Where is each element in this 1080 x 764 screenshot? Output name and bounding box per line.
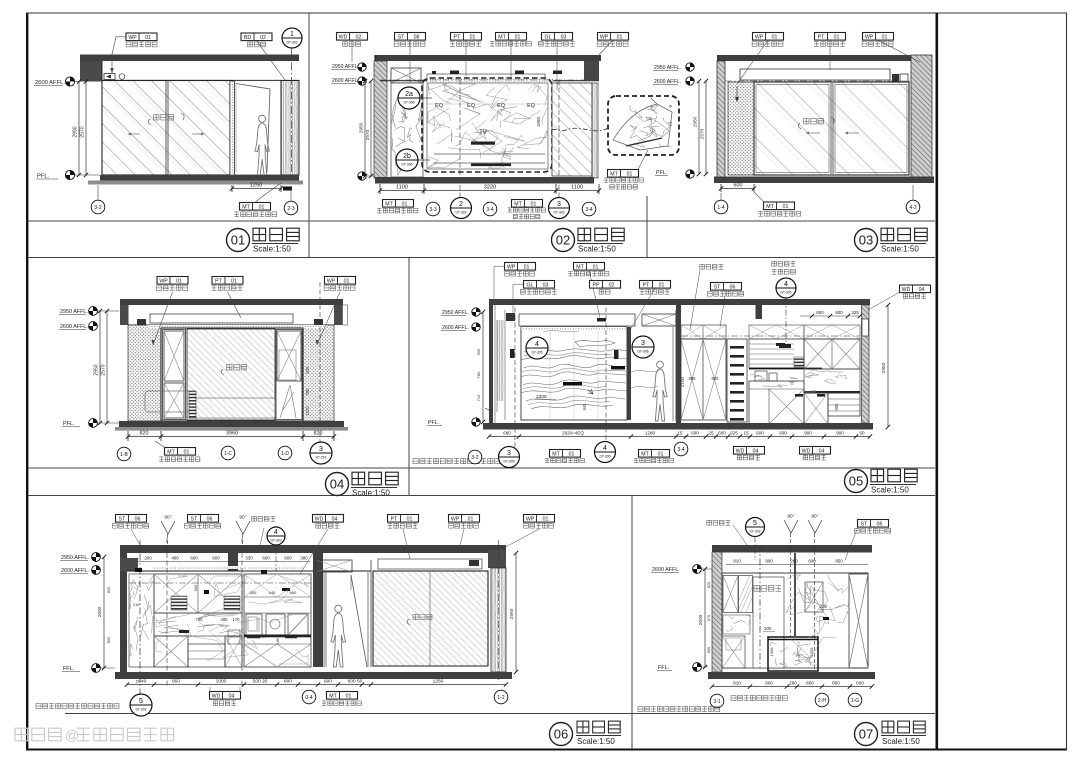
svg-text:WP: WP [600,34,609,40]
svg-text:01: 01 [531,201,537,207]
svg-text:2920=4EQ: 2920=4EQ [562,431,584,436]
svg-text:FFL.: FFL. [63,666,74,672]
svg-text:600: 600 [190,556,198,561]
svg-text:GL: GL [545,34,552,40]
svg-text:3220: 3220 [484,185,496,191]
svg-text:600: 600 [689,376,697,381]
svg-text:02: 02 [356,34,362,40]
svg-text:1100: 1100 [571,185,583,191]
svg-text:4: 4 [603,445,607,452]
svg-text:WD: WD [902,287,911,293]
svg-text:1280: 1280 [645,431,656,436]
svg-text:820: 820 [140,431,149,437]
svg-text:WP: WP [526,516,535,522]
svg-text:1-4: 1-4 [717,205,724,211]
svg-text:780: 780 [476,371,481,378]
svg-text:WP: WP [865,34,874,40]
svg-text:WP: WP [128,35,137,41]
svg-text:Scale:1:50: Scale:1:50 [352,489,390,498]
svg-text:1-2: 1-2 [497,695,504,701]
svg-text:01: 01 [259,204,265,210]
svg-text:WP: WP [755,34,764,40]
svg-text:600: 600 [734,183,743,189]
svg-text:2600 AFFL.: 2600 AFFL. [60,324,88,330]
svg-text:01: 01 [658,451,664,457]
svg-text:01: 01 [176,278,182,284]
svg-text:900: 900 [804,431,812,436]
svg-text:950: 950 [172,679,180,685]
svg-text:01: 01 [882,34,888,40]
svg-text:600: 600 [756,431,764,436]
svg-text:WP: WP [507,264,516,270]
svg-text:PT: PT [818,34,825,40]
svg-text:04: 04 [753,448,759,454]
svg-text:04: 04 [919,287,925,293]
svg-text:800: 800 [107,637,111,643]
svg-text:600: 600 [284,556,292,561]
svg-text:1980: 1980 [536,116,541,127]
svg-text:PFL.: PFL. [63,421,74,427]
svg-text:160: 160 [276,638,280,644]
svg-text:ST: ST [861,521,868,527]
svg-text:2600: 2600 [698,614,704,625]
svg-text:01: 01 [407,516,413,522]
svg-text:640: 640 [269,590,276,595]
svg-text:WP: WP [451,516,460,522]
svg-text:2570: 2570 [80,126,86,137]
svg-text:1: 1 [290,31,294,38]
svg-text:ST: ST [714,284,721,290]
svg-text:PP: PP [593,282,600,288]
svg-text:01: 01 [402,201,408,207]
svg-text:04: 04 [332,516,338,522]
svg-text:2950 AFFL.: 2950 AFFL. [60,309,88,315]
svg-text:960: 960 [834,403,839,411]
svg-text:713: 713 [476,394,481,401]
svg-text:06: 06 [730,284,736,290]
svg-text:Scale:1:50: Scale:1:50 [253,245,291,254]
svg-text:3: 3 [641,340,645,347]
svg-text:ST-302: ST-302 [750,530,761,534]
svg-text:4: 4 [274,529,278,536]
svg-text:3: 3 [507,450,511,457]
svg-text:01: 01 [659,282,665,288]
svg-text:Scale:1:50: Scale:1:50 [577,737,615,746]
svg-text:820: 820 [314,431,323,437]
svg-text:02: 02 [556,233,570,248]
svg-text:DT-305: DT-305 [503,460,514,464]
svg-text:670: 670 [707,615,711,621]
svg-text:ST-302: ST-302 [136,708,147,712]
svg-text:Scale:1:50: Scale:1:50 [882,737,920,746]
svg-text:2300: 2300 [536,394,547,400]
svg-text:01: 01 [468,516,474,522]
svg-text:ST-301: ST-301 [316,456,327,460]
svg-text:210: 210 [133,603,139,607]
svg-text:760: 760 [196,617,204,622]
svg-text:2600 AFFL.: 2600 AFFL. [35,80,65,86]
svg-text:2570: 2570 [101,364,107,375]
svg-text:3-4: 3-4 [486,207,493,213]
svg-text:01: 01 [344,278,350,284]
svg-text:5: 5 [753,520,757,527]
svg-text:Scale:1:50: Scale:1:50 [578,245,616,254]
svg-text:2950: 2950 [881,362,887,373]
svg-text:01: 01 [515,34,521,40]
svg-text:2600 AFFL.: 2600 AFFL. [442,325,469,331]
svg-text:06: 06 [135,516,141,522]
svg-text:600: 600 [691,431,699,436]
svg-text:01: 01 [184,449,190,455]
svg-text:MT: MT [641,451,649,457]
svg-text:600: 600 [712,376,720,381]
svg-text:325: 325 [851,310,859,315]
svg-text:400: 400 [221,617,229,622]
svg-text:90°: 90° [787,514,794,520]
svg-text:2-H: 2-H [818,698,826,704]
svg-text:DT-306: DT-306 [637,350,648,354]
svg-text:01: 01 [145,35,151,41]
svg-text:DT-302: DT-302 [553,211,564,215]
svg-text:03: 03 [859,233,873,248]
svg-text:PFL.: PFL. [428,420,439,426]
svg-text:820: 820 [707,582,711,588]
svg-text:3: 3 [557,201,561,208]
svg-text:780: 780 [305,388,310,396]
svg-text:WP: WP [159,278,168,284]
svg-text:50: 50 [859,431,865,436]
svg-text:600: 600 [262,556,270,561]
svg-text:4: 4 [535,341,539,348]
svg-text:BD: BD [244,35,251,41]
svg-text:25: 25 [708,431,714,436]
svg-text:600: 600 [779,431,787,436]
svg-text:01: 01 [543,516,549,522]
svg-text:600: 600 [718,431,726,436]
svg-text:2600 AFFL.: 2600 AFFL. [332,78,359,84]
svg-text:3960: 3960 [226,431,238,437]
svg-text:680: 680 [503,431,511,436]
svg-text:WD: WD [339,34,348,40]
svg-text:330: 330 [245,556,253,561]
svg-text:600 50: 600 50 [348,679,363,685]
svg-text:MT: MT [385,201,393,207]
svg-text:MT: MT [766,204,774,210]
svg-text:05: 05 [849,474,863,489]
svg-text:PFL.: PFL. [656,170,667,176]
svg-text:PT: PT [643,282,650,288]
svg-text:1000: 1000 [216,679,227,685]
svg-text:900: 900 [836,431,844,436]
svg-text:ST: ST [398,34,405,40]
svg-text:90°: 90° [164,515,171,521]
svg-text:800: 800 [707,647,711,653]
svg-text:90°: 90° [811,514,818,520]
svg-text:2990: 2990 [73,126,79,137]
svg-text:2600 AFFL.: 2600 AFFL. [654,79,681,85]
svg-text:500 20: 500 20 [253,679,268,685]
svg-text:MT: MT [514,201,522,207]
svg-text:600: 600 [290,590,297,595]
svg-text:600: 600 [284,679,292,685]
svg-text:4-2: 4-2 [909,205,916,211]
svg-text:01: 01 [470,34,476,40]
svg-text:01: 01 [627,171,633,177]
svg-text:06: 06 [877,521,883,527]
svg-text:2950: 2950 [359,122,365,133]
svg-text:3-1: 3-1 [713,699,720,705]
svg-text:15: 15 [677,431,683,436]
svg-text:WP: WP [327,278,336,284]
svg-text:5: 5 [139,698,143,705]
svg-text:04: 04 [229,693,235,699]
svg-text:3: 3 [319,446,323,453]
svg-text:06: 06 [554,727,568,742]
svg-text:1-G: 1-G [851,698,859,704]
svg-text:4: 4 [784,281,788,288]
svg-text:2950 AFFL.: 2950 AFFL. [442,310,469,316]
svg-text:2950 AFFL.: 2950 AFFL. [61,555,89,561]
svg-text:02: 02 [609,282,615,288]
svg-text:01: 01 [346,693,352,699]
svg-text:1-B: 1-B [120,452,128,458]
svg-text:01: 01 [772,34,778,40]
svg-text:FFL.: FFL. [658,665,669,671]
svg-text:600: 600 [193,584,198,591]
svg-text:1520: 1520 [305,406,310,416]
svg-text:600: 600 [856,681,864,686]
svg-text:DT-302: DT-302 [455,211,466,215]
svg-text:170: 170 [233,617,241,622]
svg-text:DT-305: DT-305 [531,351,542,355]
svg-text:MT: MT [552,451,560,457]
svg-text:04: 04 [330,477,344,492]
svg-text:WD: WD [315,516,324,522]
svg-text:Scale:1:50: Scale:1:50 [881,245,919,254]
svg-text:940: 940 [582,403,587,411]
svg-text:DT-305: DT-305 [780,291,791,295]
svg-text:3-2: 3-2 [94,205,101,211]
svg-text:WD: WD [212,693,221,699]
svg-text:PT: PT [454,34,461,40]
svg-text:600: 600 [808,559,816,564]
svg-text:2600 AFFL.: 2600 AFFL. [61,568,89,574]
svg-text:01: 01 [569,451,575,457]
svg-text:01: 01 [231,233,245,248]
svg-text:625: 625 [730,431,738,436]
svg-text:600: 600 [835,310,843,315]
svg-text:1250: 1250 [433,679,444,685]
svg-text:07: 07 [859,727,873,742]
svg-text:850: 850 [835,559,843,564]
svg-text:2570: 2570 [700,128,706,139]
svg-text:1250: 1250 [250,183,262,189]
svg-text:01: 01 [617,34,623,40]
svg-text:600: 600 [212,556,220,561]
svg-text:380: 380 [300,556,308,561]
svg-text:810: 810 [733,559,741,564]
svg-text:2-3: 2-3 [287,206,294,212]
svg-text:03: 03 [543,282,549,288]
svg-text:600: 600 [324,679,332,685]
svg-text:1368: 1368 [769,647,774,657]
svg-text:01: 01 [524,264,530,270]
svg-text:3-3: 3-3 [429,207,436,213]
svg-text:TV: TV [479,130,487,136]
svg-text:900: 900 [765,559,773,564]
svg-text:ST: ST [119,516,126,522]
svg-text:PT: PT [391,516,398,522]
svg-text:ST: ST [191,516,198,522]
svg-text:2950: 2950 [94,364,100,375]
svg-text:3-2: 3-2 [471,455,478,461]
svg-text:MT: MT [329,693,337,699]
svg-text:810: 810 [733,681,741,686]
svg-text:01: 01 [834,34,840,40]
svg-text:695: 695 [476,348,481,355]
svg-text:DT-306: DT-306 [403,101,414,105]
svg-text:2950: 2950 [693,116,699,127]
svg-text:01: 01 [783,204,789,210]
svg-text:08: 08 [414,34,420,40]
svg-text:1100: 1100 [396,185,408,191]
svg-text:DT-306: DT-306 [401,163,412,167]
svg-text:3-4: 3-4 [585,207,592,213]
svg-text:PFL.: PFL. [37,174,50,180]
svg-text:DT-306: DT-306 [599,455,610,459]
svg-text:2950 AFFL.: 2950 AFFL. [332,64,359,70]
svg-text:DT-303: DT-303 [270,539,281,543]
svg-text:600: 600 [107,587,111,593]
svg-text:15: 15 [743,431,749,436]
svg-text:03: 03 [561,34,567,40]
svg-text:2600 AFFL.: 2600 AFFL. [652,567,680,573]
svg-text:02: 02 [260,35,266,41]
svg-text:0-4: 0-4 [305,695,312,701]
svg-text:PT: PT [215,278,222,284]
svg-text:Scale:1:50: Scale:1:50 [871,486,909,495]
svg-text:01: 01 [593,264,599,270]
svg-text:MT: MT [167,449,175,455]
svg-text:MT: MT [576,264,584,270]
svg-text:2b: 2b [403,153,411,160]
svg-text:2a: 2a [405,91,413,98]
svg-text:04: 04 [819,448,825,454]
svg-text:200: 200 [764,626,772,631]
svg-text:600: 600 [816,310,824,315]
svg-text:2950 AFFL.: 2950 AFFL. [654,65,681,71]
svg-text:WD: WD [736,448,745,454]
svg-text:2600: 2600 [97,606,103,617]
svg-text:200: 200 [144,556,152,561]
svg-text:MT: MT [498,34,506,40]
svg-text:GL: GL [527,282,534,288]
svg-text:820: 820 [305,366,310,374]
svg-text:WD: WD [802,448,811,454]
svg-text:06: 06 [207,516,213,522]
svg-text:1-C: 1-C [224,451,232,457]
svg-text:2570: 2570 [365,129,371,140]
svg-text:01: 01 [231,278,237,284]
svg-text:1-D: 1-D [281,451,289,457]
svg-text:90°: 90° [239,515,246,521]
svg-text:850: 850 [832,681,840,686]
svg-text:2950: 2950 [509,608,515,619]
svg-text:1504: 1504 [123,640,128,650]
svg-text:MT: MT [242,204,250,210]
svg-text:3-4: 3-4 [677,447,684,453]
svg-text:±640: ±640 [136,679,147,685]
svg-text:2: 2 [459,201,463,208]
svg-text:480: 480 [171,556,179,561]
svg-text:600: 600 [806,681,814,686]
svg-text:MT: MT [610,171,618,177]
svg-text:DT-302: DT-302 [286,41,297,45]
svg-text:260: 260 [789,681,797,686]
svg-text:900: 900 [765,681,773,686]
